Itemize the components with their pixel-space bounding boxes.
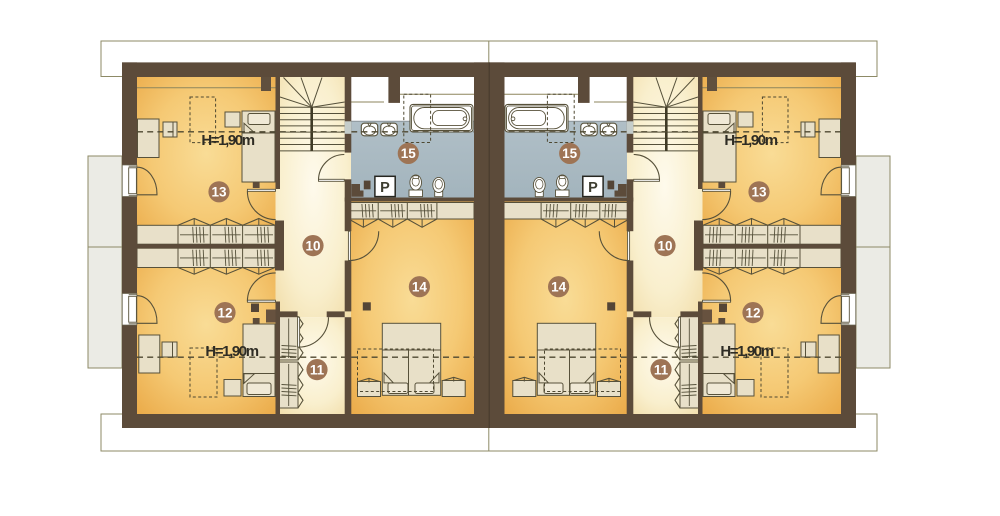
svg-text:H=1,90m: H=1,90m — [720, 343, 773, 360]
svg-text:10: 10 — [305, 238, 320, 253]
svg-text:12: 12 — [745, 305, 760, 320]
svg-text:11: 11 — [310, 362, 325, 377]
svg-text:15: 15 — [401, 146, 417, 161]
svg-text:H=1,90m: H=1,90m — [201, 132, 254, 149]
svg-text:11: 11 — [654, 362, 669, 377]
svg-text:13: 13 — [751, 185, 767, 200]
svg-text:14: 14 — [551, 280, 567, 295]
svg-text:H=1,90m: H=1,90m — [205, 343, 258, 360]
svg-text:10: 10 — [657, 238, 672, 253]
svg-text:13: 13 — [211, 185, 227, 200]
svg-text:H=1,90m: H=1,90m — [724, 132, 777, 149]
svg-text:15: 15 — [562, 146, 578, 161]
svg-text:P: P — [588, 180, 598, 196]
svg-text:P: P — [380, 180, 390, 196]
svg-text:14: 14 — [412, 280, 428, 295]
svg-text:12: 12 — [217, 305, 232, 320]
